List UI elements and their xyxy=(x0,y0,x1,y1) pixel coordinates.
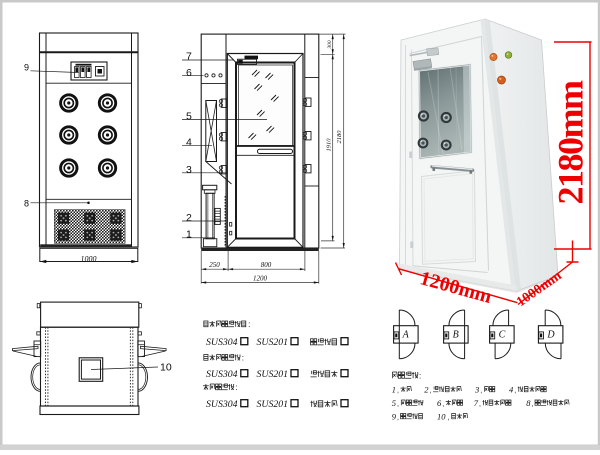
svg-text:,: , xyxy=(397,388,399,395)
svg-text:,: , xyxy=(447,415,449,422)
svg-text:1200: 1200 xyxy=(253,274,268,282)
svg-text:SUS304: SUS304 xyxy=(206,369,238,380)
svg-text:,: , xyxy=(430,388,432,395)
svg-text::: : xyxy=(248,320,250,329)
svg-text:SUS304: SUS304 xyxy=(206,399,238,410)
svg-text:B: B xyxy=(453,330,459,341)
svg-text:,: , xyxy=(442,401,444,408)
svg-text:5: 5 xyxy=(392,398,396,408)
svg-text:7: 7 xyxy=(186,51,192,63)
svg-text:800: 800 xyxy=(261,261,272,269)
svg-text:1000: 1000 xyxy=(81,255,97,264)
svg-text:C: C xyxy=(499,330,506,341)
svg-text:3: 3 xyxy=(186,164,192,176)
svg-text:D: D xyxy=(546,330,555,341)
svg-text:,: , xyxy=(479,401,481,408)
svg-text:300: 300 xyxy=(327,40,333,50)
svg-text:6: 6 xyxy=(186,67,192,79)
svg-text:8: 8 xyxy=(24,199,29,209)
svg-text:1910: 1910 xyxy=(326,138,333,152)
svg-text:250: 250 xyxy=(209,261,220,269)
svg-text::: : xyxy=(236,383,238,392)
svg-text::: : xyxy=(419,372,421,381)
svg-text:1: 1 xyxy=(392,385,396,395)
svg-text:,: , xyxy=(480,388,482,395)
svg-text:2180: 2180 xyxy=(336,130,343,144)
svg-text:4: 4 xyxy=(186,137,192,149)
svg-text:,: , xyxy=(532,401,534,408)
svg-text:A: A xyxy=(402,330,410,341)
svg-text:,: , xyxy=(397,401,399,408)
svg-text:SUS201: SUS201 xyxy=(257,369,289,380)
svg-text:,: , xyxy=(397,415,399,422)
svg-text:1: 1 xyxy=(186,229,192,241)
svg-text::: : xyxy=(242,354,244,363)
svg-text:SUS201: SUS201 xyxy=(257,337,289,348)
svg-text:5: 5 xyxy=(186,111,192,123)
svg-text:10: 10 xyxy=(160,362,172,374)
svg-text:3: 3 xyxy=(474,385,479,395)
svg-text:10: 10 xyxy=(437,412,446,422)
svg-text:,: , xyxy=(514,388,516,395)
svg-text:SUS304: SUS304 xyxy=(206,337,238,348)
svg-text:SUS201: SUS201 xyxy=(257,399,289,410)
svg-text:2: 2 xyxy=(186,212,192,224)
svg-text:2180mm: 2180mm xyxy=(550,80,590,204)
svg-text:9: 9 xyxy=(24,63,29,73)
